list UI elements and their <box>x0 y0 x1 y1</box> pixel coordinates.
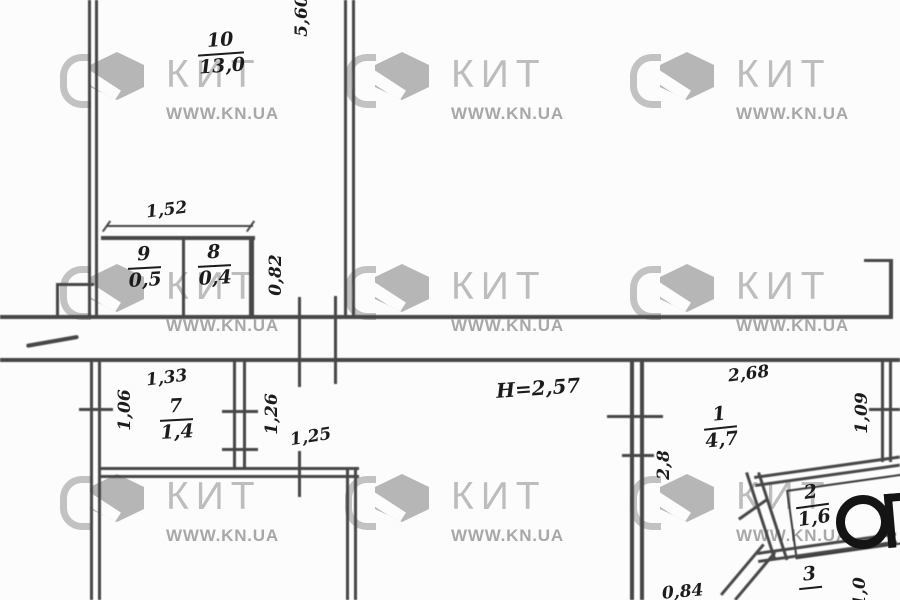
dimension-tick <box>222 448 258 451</box>
dim-0-84: 0,84 <box>661 580 704 600</box>
dimension-tick <box>869 408 900 411</box>
room-2-label: 21,6 <box>793 480 832 532</box>
wall-segment <box>298 451 301 497</box>
wall-segment <box>630 362 634 600</box>
wall-segment <box>95 0 98 318</box>
entrance-arrow <box>26 335 79 348</box>
wall-segment <box>98 362 101 600</box>
wall-segment <box>56 283 94 286</box>
wall-segment <box>640 362 644 600</box>
dimension-line <box>106 225 253 227</box>
wall-segment <box>344 0 347 317</box>
wall-segment <box>90 362 93 600</box>
floor-plan-walls <box>0 0 900 600</box>
floor-plan-scan: КИТ WWW.KN.UA КИТ WWW.KN.UA КИТ WWW.KN.U… <box>0 0 900 600</box>
dim-1-06: 1,06 <box>115 378 135 442</box>
wall-segment <box>243 362 246 468</box>
room-1-label: 14,7 <box>702 402 740 453</box>
wall-segment <box>864 259 893 262</box>
wall-segment <box>233 362 236 468</box>
hatch-line <box>734 552 776 600</box>
wall-segment <box>889 362 892 462</box>
dimension-tick <box>622 454 654 457</box>
wall-segment <box>56 284 59 318</box>
wall-segment <box>101 467 359 470</box>
dim-0-82: 0,82 <box>266 243 286 307</box>
wall-break-mark <box>334 296 337 384</box>
wall-segment <box>889 259 893 319</box>
wall-segment <box>101 236 255 240</box>
room-3-label: 3 <box>797 563 823 591</box>
wall-segment <box>881 362 884 462</box>
wall-break-mark <box>298 297 301 387</box>
dim-5-60: 5,60 <box>292 0 312 48</box>
room-7-label: 71,4 <box>159 395 195 444</box>
dimension-tick <box>79 408 113 411</box>
wall-segment <box>88 0 91 318</box>
dim-1-26: 1,26 <box>262 382 282 446</box>
dimension-tick <box>607 415 663 418</box>
room-10-label: 1013,0 <box>196 28 245 79</box>
dim-1-0: 1,0 <box>850 560 870 600</box>
wall-segment <box>0 315 893 319</box>
wall-segment <box>101 475 359 478</box>
room-8-label: 80,4 <box>197 241 233 290</box>
door-swing-line <box>738 498 767 520</box>
wall-segment <box>354 467 357 600</box>
wall-segment <box>182 239 185 316</box>
dim-1-09: 1,09 <box>852 381 872 445</box>
room-9-label: 90,5 <box>127 243 163 292</box>
wall-segment <box>249 239 254 316</box>
wall-segment <box>352 0 355 317</box>
wall-segment <box>346 467 349 600</box>
dimension-tick <box>222 410 258 413</box>
dim-2-8: 2,8 <box>654 433 674 497</box>
